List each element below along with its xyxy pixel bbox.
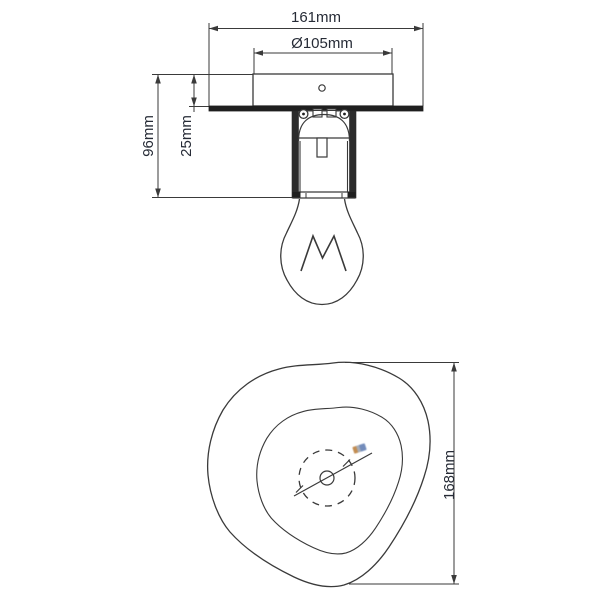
screw-center [302, 113, 305, 116]
dim-label-canopy-height: 25mm [179, 106, 195, 166]
bottom-view [208, 362, 459, 586]
drawing-canvas [0, 0, 600, 599]
arrowhead-up [451, 363, 457, 372]
socket-wall-left [292, 111, 299, 198]
screw-center [343, 113, 346, 116]
lip-corner-right [348, 192, 356, 198]
technical-drawing-page: 161mm Ø105mm 96mm 25mm 168mm [0, 0, 600, 599]
dim-label-canopy-diameter: Ø105mm [282, 36, 362, 52]
arrowhead-up [155, 75, 161, 84]
arrowhead-left [254, 50, 263, 56]
shade-inner-ring [257, 407, 403, 554]
socket-wall-right [350, 111, 357, 198]
arrowhead-left [209, 26, 218, 32]
arrowhead-down [451, 575, 457, 584]
dim-label-overall-height: 96mm [141, 106, 157, 166]
dim-label-shade-height: 168mm [442, 445, 458, 505]
arrowhead-right [414, 26, 423, 32]
socket-dome-arc [299, 115, 350, 142]
lamp-socket [292, 109, 356, 198]
shade-outline [208, 362, 430, 586]
arrowhead-up [191, 75, 197, 84]
filament-m-icon [301, 236, 346, 271]
dim-label-overall-width: 161mm [276, 10, 356, 26]
arrowhead-right [383, 50, 392, 56]
bulb-outline [281, 199, 364, 305]
canopy-outline [253, 74, 393, 106]
arrowhead-down [155, 189, 161, 198]
lip-corner-left [293, 192, 301, 198]
holder-key-notch [317, 138, 327, 157]
